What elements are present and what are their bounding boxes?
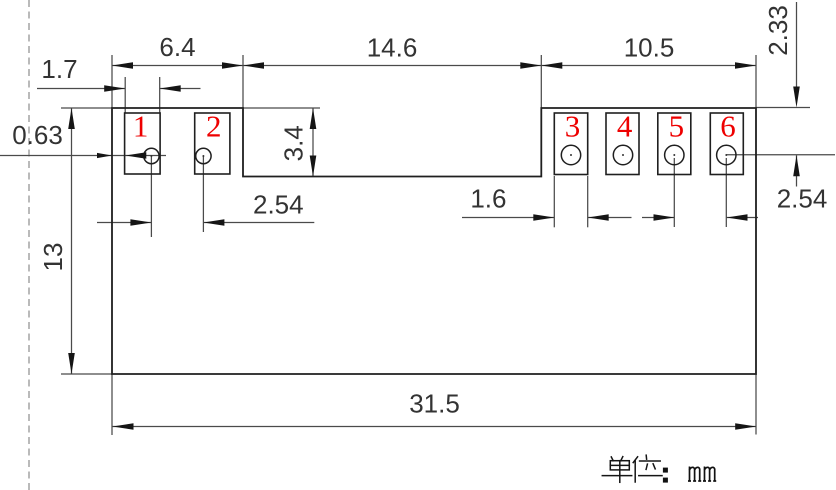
svg-text:2: 2 <box>206 109 222 144</box>
svg-text:13: 13 <box>38 243 68 272</box>
svg-text:2.54: 2.54 <box>777 184 828 214</box>
svg-text:6.4: 6.4 <box>159 32 195 62</box>
svg-text:14.6: 14.6 <box>367 33 418 63</box>
svg-text:5: 5 <box>669 109 685 144</box>
svg-text:1: 1 <box>133 109 149 144</box>
svg-text:4: 4 <box>617 109 633 144</box>
svg-text:0.63: 0.63 <box>12 120 63 150</box>
svg-text:6: 6 <box>720 109 736 144</box>
svg-text:31.5: 31.5 <box>409 389 460 419</box>
svg-text:2.54: 2.54 <box>253 190 304 220</box>
svg-text:1.7: 1.7 <box>41 54 77 84</box>
svg-text:1.6: 1.6 <box>470 184 506 214</box>
svg-text:2.33: 2.33 <box>763 5 793 56</box>
svg-text:3: 3 <box>565 109 581 144</box>
svg-text:10.5: 10.5 <box>624 33 675 63</box>
svg-text:3.4: 3.4 <box>279 125 309 161</box>
